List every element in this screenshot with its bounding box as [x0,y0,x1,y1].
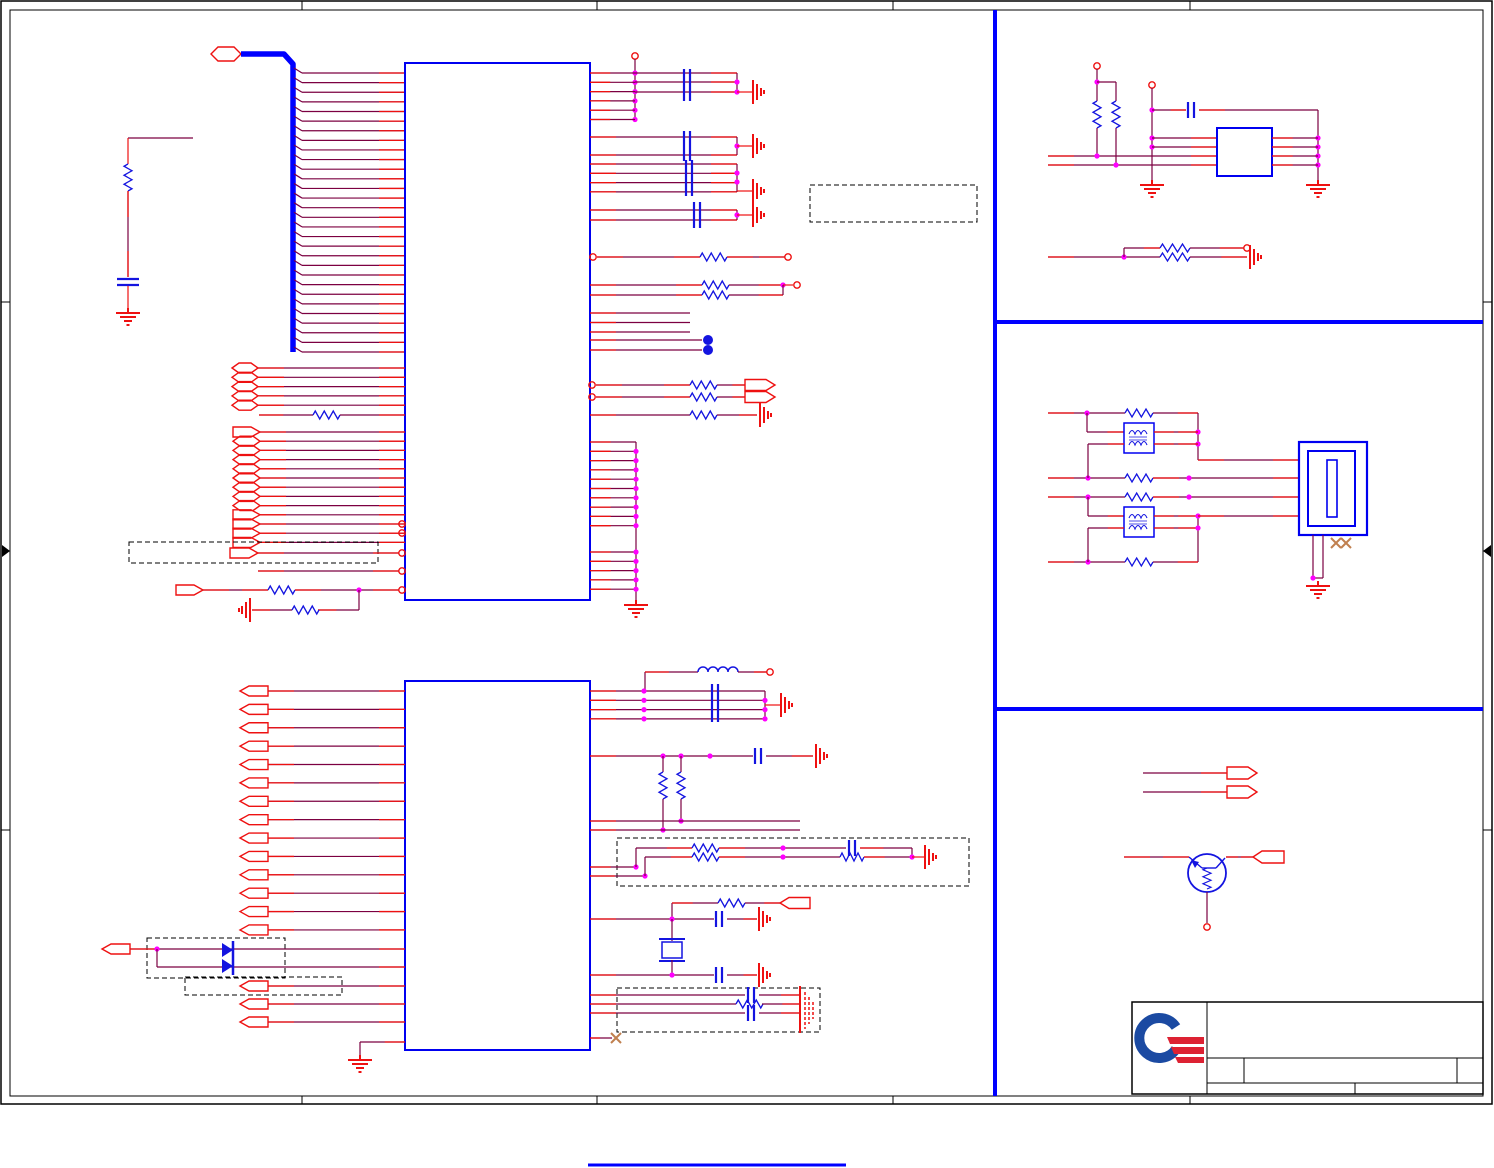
bus-entry [211,47,405,352]
ic2-body [405,681,590,1050]
ic2-right-power [590,667,827,833]
ic2-esd-protection [102,938,405,1072]
ic1-left-ports [129,363,405,622]
ic2-crystal-circuit [590,898,810,988]
usb-connector-circuit [1048,409,1367,598]
ic1-ground-bundle [590,442,648,617]
ic1-body [405,63,590,600]
ic1-right-decoupling [590,53,764,228]
transistor-circuit [1124,767,1284,930]
ic2-right-filters [590,838,969,1043]
pullup-rc-network [116,138,193,325]
qualcomm-logo [1139,1018,1204,1063]
section-dividers [995,10,1483,1096]
schematic-sheet [0,0,1494,1168]
emi-filter-circuit [1048,63,1330,269]
ic2-left-ports [240,686,405,935]
ic1-right-signals [589,253,800,427]
notes-box [810,185,977,222]
schematic-page [0,0,1494,1168]
